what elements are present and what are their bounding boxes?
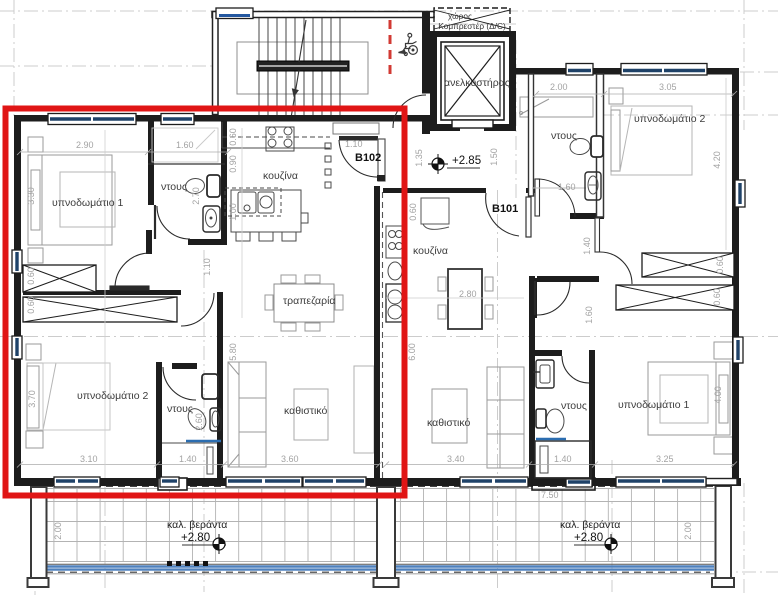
svg-text:0.60: 0.60 bbox=[408, 203, 418, 221]
svg-text:0.60: 0.60 bbox=[228, 128, 238, 146]
svg-text:καλ. βεράντα: καλ. βεράντα bbox=[560, 519, 620, 531]
svg-text:καλ. βεράντα: καλ. βεράντα bbox=[167, 519, 227, 531]
svg-text:2.70: 2.70 bbox=[191, 187, 201, 205]
svg-text:0.90: 0.90 bbox=[228, 155, 238, 173]
svg-text:ανελκυστήρας: ανελκυστήρας bbox=[444, 77, 510, 89]
svg-text:4.20: 4.20 bbox=[712, 151, 722, 169]
svg-text:2.80: 2.80 bbox=[459, 289, 477, 299]
svg-text:2.90: 2.90 bbox=[76, 140, 94, 150]
svg-text:1.60: 1.60 bbox=[558, 182, 576, 192]
svg-text:1.60: 1.60 bbox=[584, 306, 594, 324]
svg-text:1.60: 1.60 bbox=[176, 140, 194, 150]
svg-text:ντους: ντους bbox=[551, 130, 577, 142]
svg-text:2.00: 2.00 bbox=[53, 522, 63, 540]
svg-text:3.25: 3.25 bbox=[656, 454, 674, 464]
svg-text:0.60: 0.60 bbox=[715, 256, 725, 274]
svg-text:1.40: 1.40 bbox=[554, 454, 572, 464]
svg-text:1.00: 1.00 bbox=[228, 203, 238, 221]
svg-text:1.35: 1.35 bbox=[414, 149, 424, 167]
svg-text:3.10: 3.10 bbox=[80, 454, 98, 464]
svg-text:1.10: 1.10 bbox=[345, 139, 363, 149]
svg-text:1.10: 1.10 bbox=[202, 258, 212, 276]
svg-text:κουζίνα: κουζίνα bbox=[413, 245, 448, 257]
svg-text:2.60: 2.60 bbox=[194, 413, 204, 431]
svg-text:3.40: 3.40 bbox=[447, 454, 465, 464]
svg-text:B102: B102 bbox=[355, 152, 381, 164]
svg-text:2.00: 2.00 bbox=[550, 82, 568, 92]
svg-text:υπνοδωμάτιο 1: υπνοδωμάτιο 1 bbox=[52, 197, 123, 209]
svg-text:+2.80: +2.80 bbox=[574, 532, 603, 544]
svg-text:5.80: 5.80 bbox=[228, 343, 238, 361]
svg-text:3.05: 3.05 bbox=[659, 82, 677, 92]
svg-text:4.00: 4.00 bbox=[713, 386, 723, 404]
svg-text:υπνοδωμάτιο 2: υπνοδωμάτιο 2 bbox=[77, 390, 148, 402]
svg-text:1.40: 1.40 bbox=[179, 454, 197, 464]
svg-text:2.00: 2.00 bbox=[683, 522, 693, 540]
svg-text:χώρος: χώρος bbox=[448, 11, 472, 21]
svg-text:ντους: ντους bbox=[167, 403, 193, 415]
svg-text:3.70: 3.70 bbox=[27, 390, 37, 408]
svg-text:καθιστικό: καθιστικό bbox=[284, 405, 327, 417]
svg-text:B101: B101 bbox=[492, 203, 518, 215]
svg-text:6.00: 6.00 bbox=[407, 343, 417, 361]
svg-text:καθιστικό: καθιστικό bbox=[427, 417, 470, 429]
svg-text:1.40: 1.40 bbox=[582, 237, 592, 255]
svg-text:1.50: 1.50 bbox=[489, 148, 499, 166]
svg-text:τραπεζαρία: τραπεζαρία bbox=[283, 295, 336, 307]
svg-text:Κομπρεστέρ (Δ/C): Κομπρεστέρ (Δ/C) bbox=[438, 21, 506, 31]
svg-text:κουζίνα: κουζίνα bbox=[263, 170, 298, 182]
svg-text:ντους: ντους bbox=[161, 181, 187, 193]
svg-text:0.60: 0.60 bbox=[26, 267, 36, 285]
svg-text:υπνοδωμάτιο 1: υπνοδωμάτιο 1 bbox=[618, 399, 689, 411]
svg-text:3.30: 3.30 bbox=[26, 187, 36, 205]
svg-text:υπνοδωμάτιο 2: υπνοδωμάτιο 2 bbox=[634, 113, 705, 125]
svg-text:0.60: 0.60 bbox=[26, 296, 36, 314]
svg-text:ντους: ντους bbox=[561, 400, 587, 412]
svg-text:3.60: 3.60 bbox=[281, 454, 299, 464]
svg-text:+2.85: +2.85 bbox=[452, 155, 481, 167]
svg-text:7.50: 7.50 bbox=[541, 490, 559, 500]
svg-text:0.60: 0.60 bbox=[712, 288, 722, 306]
svg-text:+2.80: +2.80 bbox=[181, 532, 210, 544]
